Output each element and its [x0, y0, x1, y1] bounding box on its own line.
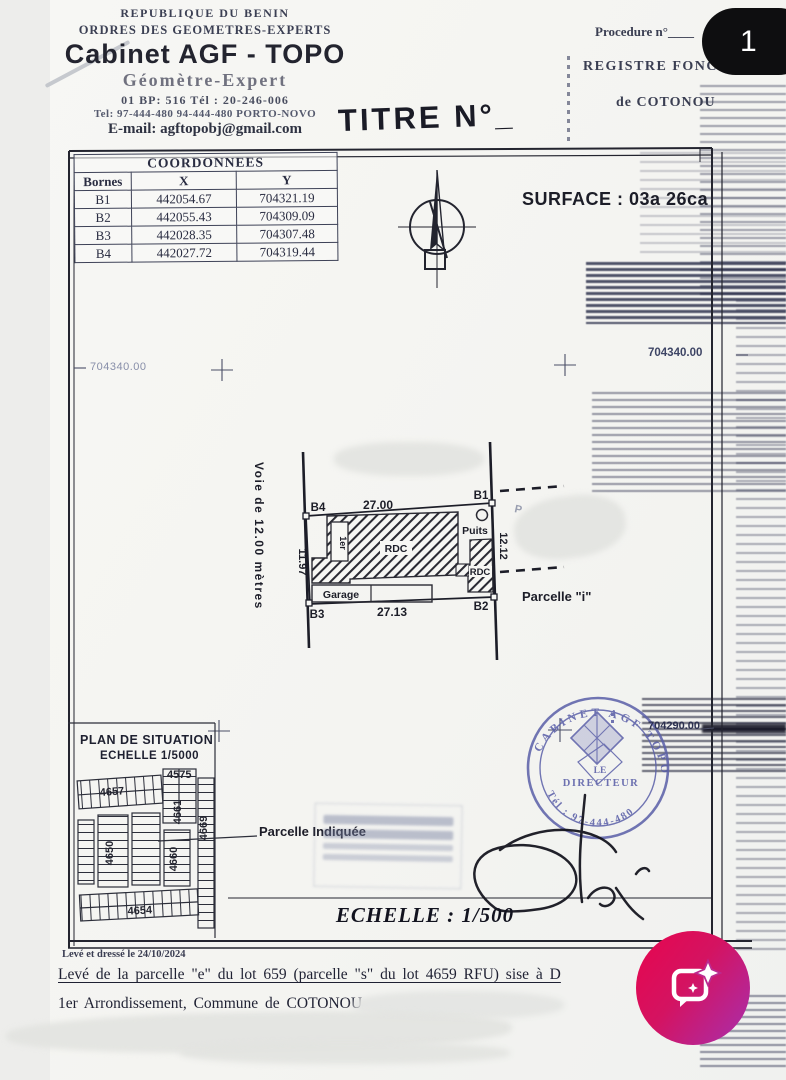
col-header-bornes: Bornes — [74, 172, 131, 190]
coord-y: 704307.48 — [237, 224, 338, 243]
lot-4657: 4657 — [99, 785, 124, 799]
coord-y: 704309.09 — [236, 206, 337, 225]
lot-4575: 4575 — [167, 769, 191, 781]
document-title: TITRE N°_ — [337, 97, 515, 139]
lot-4661: 4661 — [172, 800, 184, 824]
stamp-blur-line — [323, 815, 453, 826]
stamp-blur-line — [323, 829, 453, 840]
lot-4654: 4654 — [127, 904, 153, 917]
col-header-x: X — [131, 171, 236, 190]
lot-4660: 4660 — [168, 847, 180, 871]
cotonou-label: de COTONOU — [616, 95, 716, 111]
coord-y: 704319.44 — [237, 242, 338, 261]
stamp-center-le: LE — [594, 766, 607, 776]
table-row: B4 442027.72 704319.44 — [75, 242, 338, 262]
borne-id: B4 — [75, 244, 132, 262]
table-row: B1 442054.67 704321.19 — [74, 188, 337, 208]
faint-rect-stamp — [313, 803, 462, 890]
dim-top: 27.00 — [363, 498, 393, 512]
svg-text:Tél : 97-444-480: Tél : 97-444-480 — [544, 789, 637, 829]
coord-x: 442027.72 — [132, 243, 237, 262]
eraser-smudge — [180, 1042, 510, 1064]
north-arrow-icon — [398, 170, 476, 288]
situation-plan-title: PLAN DE SITUATION — [80, 733, 213, 747]
stamp-blur-line — [323, 843, 453, 851]
table-row: B2 442055.43 704309.09 — [75, 206, 338, 226]
grid-label-right: 704340.00 — [648, 347, 702, 359]
letterhead-subtitle: Géomètre-Expert — [52, 70, 358, 91]
borne-b3-label: B3 — [310, 609, 325, 621]
situation-plan-scale: ECHELLE 1/5000 — [100, 750, 199, 762]
coord-x: 442028.35 — [132, 225, 237, 244]
eraser-smudge — [334, 442, 484, 476]
letterhead: REPUBLIQUE DU BENIN ORDRES DES GEOMETRES… — [52, 6, 358, 138]
scanned-survey-document: 27.00 27.13 11.97 12.12 B4 B1 B3 B2 RDC … — [0, 0, 786, 1080]
puits-label: Puits — [462, 525, 488, 537]
road-label: Voie de 12.00 mètres — [252, 462, 266, 610]
coord-x: 442054.67 — [131, 189, 236, 208]
grid-label-left: 704340.00 — [90, 361, 147, 373]
borne-b2-label: B2 — [474, 601, 489, 613]
parcelle-adjacent-label: Parcelle "i" — [522, 589, 591, 604]
grid-label-stamp-row: 704290.00 — [648, 720, 700, 732]
chat-sparkle-icon — [662, 957, 724, 1019]
page-number: 1 — [740, 25, 757, 59]
stamp-center-directeur: DIRECTEUR — [563, 778, 640, 789]
coordinates-table: COORDONNEES Bornes X Y B1 442054.67 7043… — [74, 152, 339, 263]
rdc-small-label: RDC — [470, 567, 491, 578]
borne-id: B3 — [75, 226, 132, 244]
surface-label: SURFACE : 03a 26ca — [522, 189, 708, 210]
coordinates-table-title: COORDONNEES — [74, 152, 337, 172]
procedure-number-label: Procedure n°____ — [595, 24, 694, 40]
borne-b1-label: B1 — [474, 490, 489, 502]
main-scale-label: ECHELLE : 1/500 — [290, 903, 560, 928]
coord-y: 704321.19 — [236, 188, 337, 207]
letterhead-email: E-mail: agftopobj@gmail.com — [52, 121, 358, 138]
col-header-y: Y — [236, 170, 337, 189]
letterhead-tel-line: Tel: 97-444-480 94-444-480 PORTO-NOVO — [52, 108, 358, 120]
garage-label: Garage — [323, 589, 359, 601]
rdc-main-label: RDC — [385, 543, 408, 555]
lot-4650: 4650 — [104, 841, 116, 865]
footer-survey-date: Levé et dressé le 24/10/2024 — [62, 949, 185, 960]
dim-right: 12.12 — [497, 532, 509, 560]
borne-id: B1 — [74, 190, 131, 208]
borne-id: B2 — [75, 208, 132, 226]
round-stamp: LE DIRECTEUR CABINET AGF TOPO Tél : 97-4… — [528, 698, 671, 838]
chat-assistant-button[interactable] — [636, 931, 750, 1045]
dim-left: 11.97 — [296, 549, 308, 576]
letterhead-order: ORDRES DES GEOMETRES-EXPERTS — [52, 23, 358, 38]
letterhead-bp-line: 01 BP: 516 Tél : 20-246-006 — [52, 93, 358, 108]
borne-b4-label: B4 — [311, 502, 326, 514]
footer-description-line1: Levé de la parcelle "e" du lot 659 (parc… — [58, 966, 561, 984]
dim-bottom: 27.13 — [377, 605, 407, 619]
letterhead-country: REPUBLIQUE DU BENIN — [52, 6, 358, 21]
table-row: B3 442028.35 704307.48 — [75, 224, 338, 244]
coord-x: 442055.43 — [132, 207, 237, 226]
stamp-arc-bottom: Tél : 97-444-480 — [544, 789, 637, 829]
lot-4669: 4669 — [198, 816, 210, 840]
letterhead-cabinet-name: Cabinet AGF - TOPO — [52, 39, 358, 70]
floor-label: 1er — [338, 536, 348, 550]
puits-icon — [477, 510, 488, 521]
page-number-badge[interactable]: 1 — [702, 8, 786, 75]
stamp-blur-line — [323, 854, 453, 862]
building-rdc-right — [468, 539, 493, 592]
